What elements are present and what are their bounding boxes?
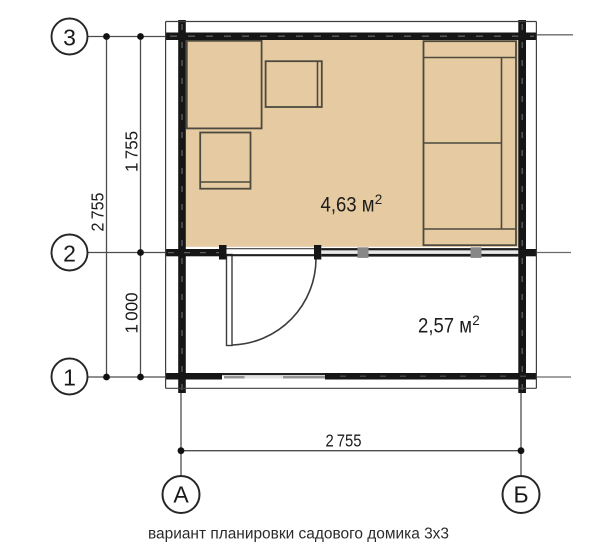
svg-text:2: 2 [375, 192, 383, 207]
svg-text:2,57 м: 2,57 м [418, 314, 472, 338]
svg-text:2: 2 [472, 313, 480, 328]
svg-text:А: А [173, 482, 189, 508]
svg-text:Б: Б [513, 482, 528, 508]
svg-text:2: 2 [63, 241, 76, 267]
svg-text:4,63 м: 4,63 м [321, 193, 375, 217]
svg-text:3: 3 [63, 25, 76, 51]
svg-text:2 755: 2 755 [326, 431, 362, 451]
svg-text:1 000: 1 000 [122, 292, 142, 333]
svg-text:вариант планировки садового до: вариант планировки садового домика 3х3 [148, 526, 449, 543]
svg-text:1: 1 [63, 365, 76, 391]
svg-text:1 755: 1 755 [122, 131, 142, 172]
svg-text:2 755: 2 755 [88, 193, 108, 232]
